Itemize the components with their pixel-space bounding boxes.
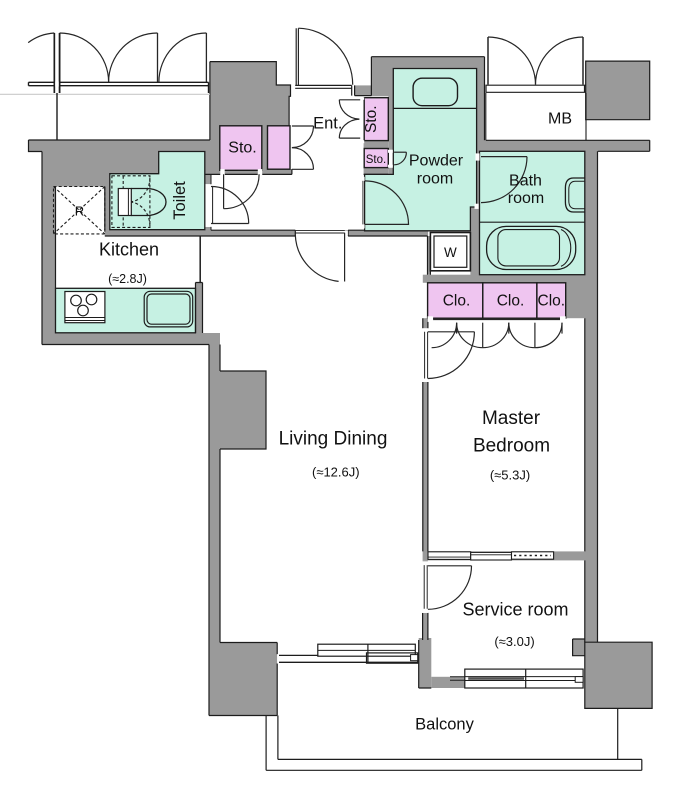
svg-text:room: room	[417, 171, 453, 188]
svg-text:(≈5.3J): (≈5.3J)	[490, 468, 530, 483]
svg-text:Kitchen: Kitchen	[99, 240, 159, 260]
svg-text:Sto.: Sto.	[228, 140, 256, 157]
svg-text:Living Dining: Living Dining	[279, 429, 388, 450]
svg-text:Service room: Service room	[462, 600, 568, 620]
svg-text:R: R	[75, 204, 84, 219]
svg-text:W: W	[444, 245, 457, 260]
svg-text:Master: Master	[482, 408, 541, 429]
svg-text:(≈3.0J): (≈3.0J)	[494, 634, 534, 649]
svg-text:Bath: Bath	[509, 173, 542, 190]
svg-text:Clo.: Clo.	[443, 293, 471, 310]
svg-text:room: room	[508, 190, 544, 207]
svg-text:Sto.: Sto.	[366, 154, 386, 166]
svg-text:Clo.: Clo.	[497, 293, 525, 310]
svg-text:Sto.: Sto.	[363, 105, 380, 133]
svg-text:Ent.: Ent.	[313, 115, 342, 133]
svg-text:Bedroom: Bedroom	[473, 436, 550, 457]
svg-text:MB: MB	[548, 111, 572, 128]
svg-text:Toilet: Toilet	[171, 181, 189, 220]
svg-text:(≈2.8J): (≈2.8J)	[108, 272, 147, 286]
svg-text:Clo.: Clo.	[538, 293, 566, 310]
svg-text:Balcony: Balcony	[415, 716, 474, 734]
svg-text:(≈12.6J): (≈12.6J)	[312, 465, 360, 480]
svg-text:Powder: Powder	[409, 153, 464, 170]
